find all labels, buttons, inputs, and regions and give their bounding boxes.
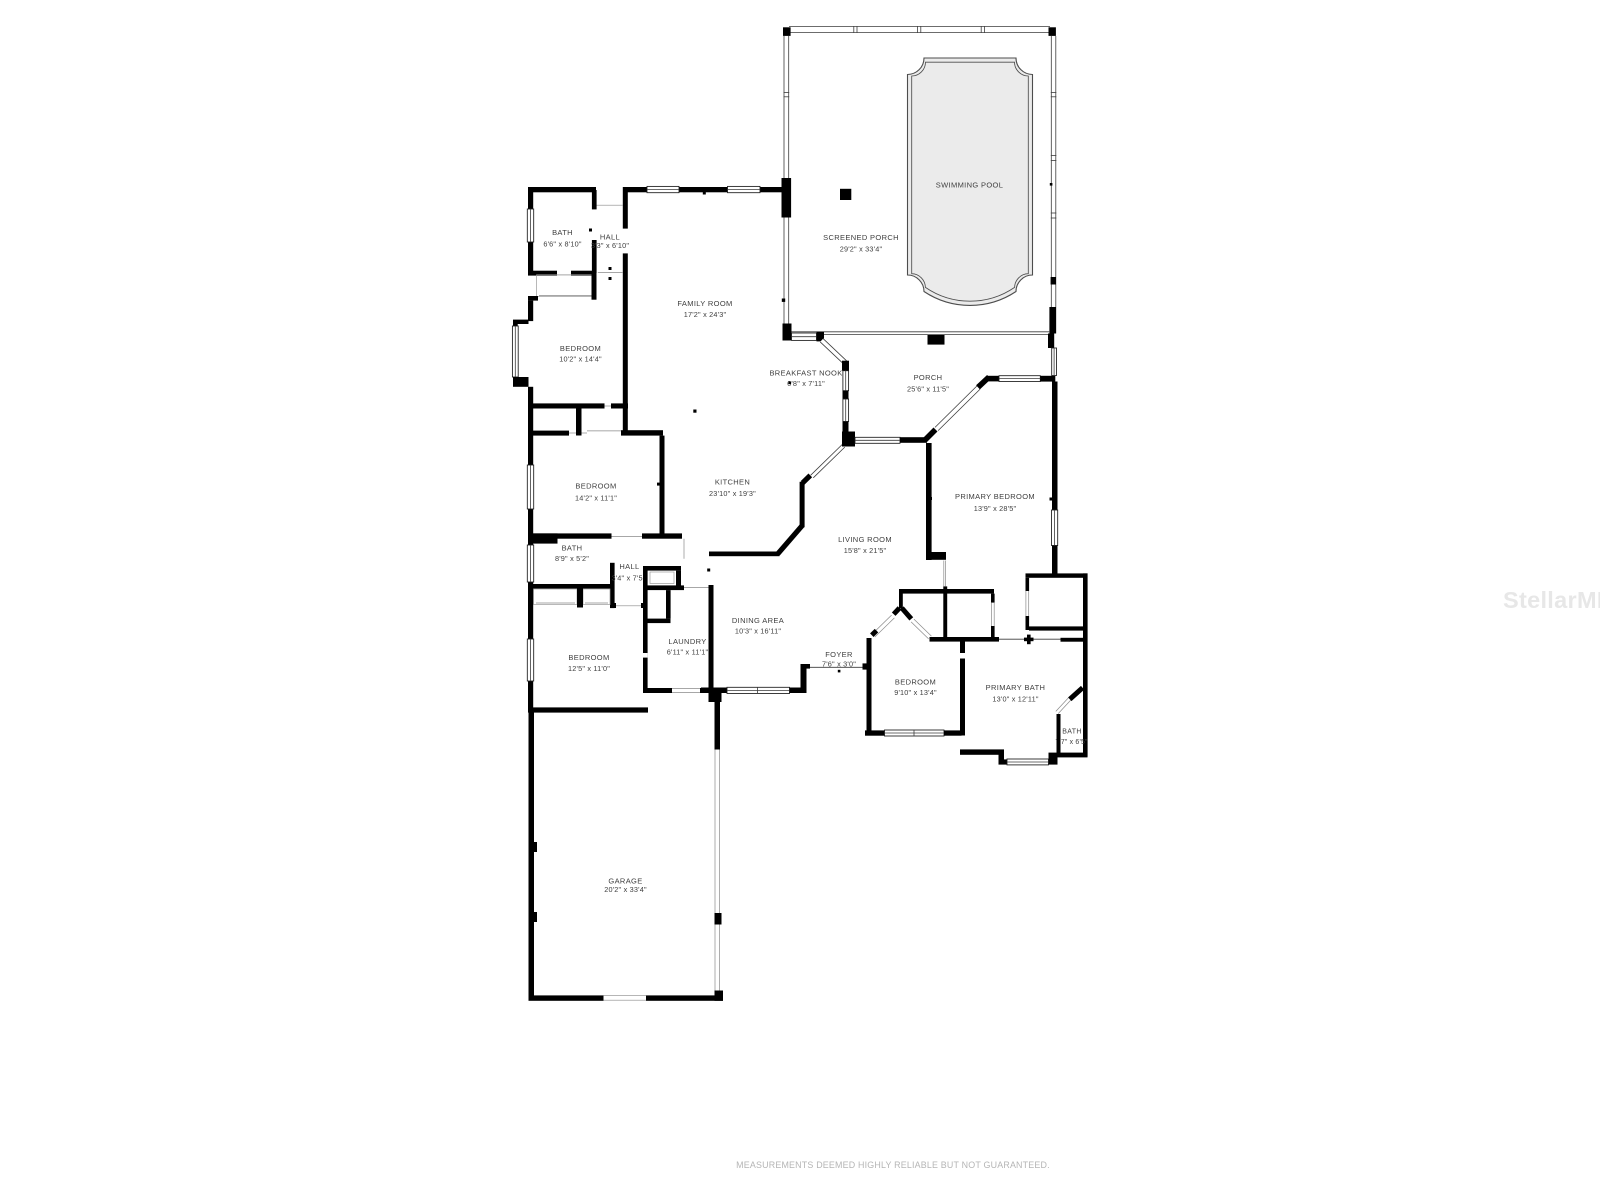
svg-text:PORCH: PORCH <box>914 373 943 382</box>
svg-text:HALL: HALL <box>619 562 639 571</box>
svg-text:10'3" x 16'11": 10'3" x 16'11" <box>735 627 782 636</box>
svg-text:BEDROOM: BEDROOM <box>895 678 936 687</box>
svg-text:KITCHEN: KITCHEN <box>715 478 750 487</box>
svg-text:PRIMARY BATH: PRIMARY BATH <box>986 683 1046 692</box>
svg-text:12'5" x 11'0": 12'5" x 11'0" <box>568 664 610 673</box>
svg-text:BEDROOM: BEDROOM <box>575 482 616 491</box>
svg-text:FOYER: FOYER <box>825 650 853 659</box>
svg-text:BATH: BATH <box>562 544 583 553</box>
svg-text:FAMILY ROOM: FAMILY ROOM <box>677 299 732 308</box>
svg-text:6'11" x 11'1": 6'11" x 11'1" <box>667 648 709 657</box>
svg-text:BEDROOM: BEDROOM <box>560 344 601 353</box>
svg-text:MEASUREMENTS DEEMED HIGHLY REL: MEASUREMENTS DEEMED HIGHLY RELIABLE BUT … <box>736 1160 1050 1170</box>
svg-text:29'2" x 33'4": 29'2" x 33'4" <box>840 245 883 254</box>
svg-text:7'6" x 3'0": 7'6" x 3'0" <box>822 659 856 668</box>
svg-text:3'4" x 7'5": 3'4" x 7'5" <box>611 574 645 583</box>
svg-text:LIVING ROOM: LIVING ROOM <box>838 535 892 544</box>
svg-text:BATH: BATH <box>1062 729 1082 736</box>
svg-text:StellarMLS: StellarMLS <box>1503 587 1600 613</box>
svg-text:23'10" x 19'3": 23'10" x 19'3" <box>709 489 756 498</box>
svg-text:PRIMARY BEDROOM: PRIMARY BEDROOM <box>955 492 1035 501</box>
svg-text:13'9" x 28'5": 13'9" x 28'5" <box>974 504 1017 513</box>
svg-text:BEDROOM: BEDROOM <box>568 653 609 662</box>
svg-text:25'6" x 11'5": 25'6" x 11'5" <box>907 384 949 393</box>
svg-text:6'8" x 7'11": 6'8" x 7'11" <box>787 379 825 388</box>
svg-text:BREAKFAST NOOK: BREAKFAST NOOK <box>769 369 842 378</box>
svg-text:9'10" x 13'4": 9'10" x 13'4" <box>894 688 937 697</box>
svg-text:6'6" x 8'10": 6'6" x 8'10" <box>543 240 582 249</box>
svg-text:SWIMMING POOL: SWIMMING POOL <box>936 181 1003 190</box>
svg-text:DINING AREA: DINING AREA <box>732 616 784 625</box>
svg-text:20'2" x 33'4": 20'2" x 33'4" <box>604 885 647 894</box>
svg-text:15'8" x 21'5": 15'8" x 21'5" <box>844 546 887 555</box>
svg-text:LAUNDRY: LAUNDRY <box>668 637 706 646</box>
svg-text:14'2" x 11'1": 14'2" x 11'1" <box>575 494 617 503</box>
svg-text:SCREENED PORCH: SCREENED PORCH <box>823 233 899 242</box>
svg-text:13'0" x 12'11": 13'0" x 12'11" <box>992 695 1039 704</box>
svg-text:8'9" x 5'2": 8'9" x 5'2" <box>555 554 589 563</box>
svg-text:17'2" x 24'3": 17'2" x 24'3" <box>684 310 727 319</box>
svg-text:10'2" x 14'4": 10'2" x 14'4" <box>559 355 602 364</box>
svg-text:BATH: BATH <box>552 228 573 237</box>
svg-text:3'3" x 6'10": 3'3" x 6'10" <box>591 241 630 250</box>
